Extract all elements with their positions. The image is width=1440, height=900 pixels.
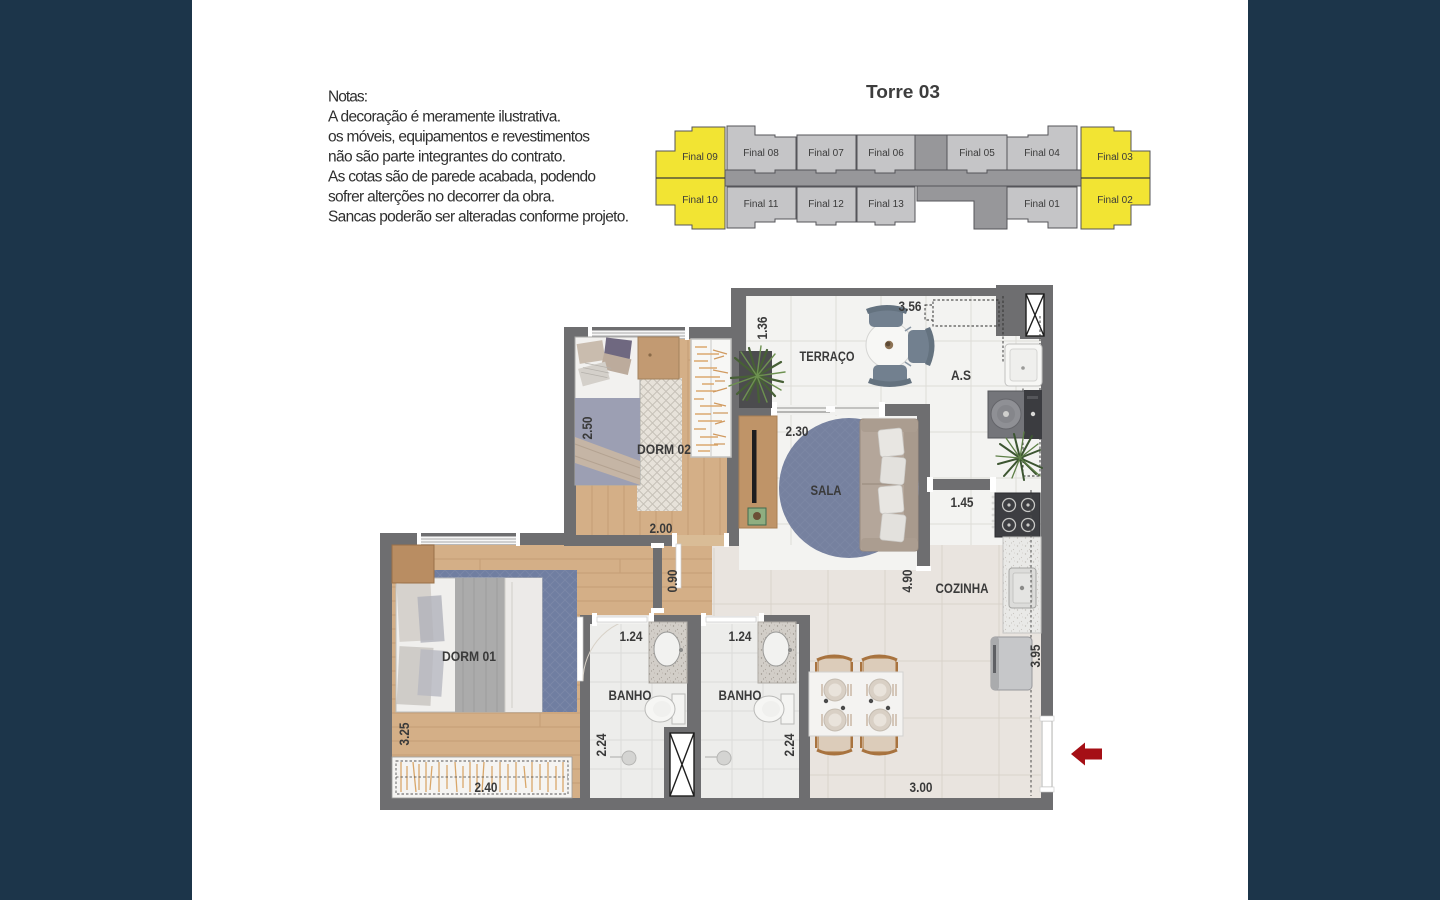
svg-text:2.24: 2.24: [782, 733, 797, 756]
svg-text:2.50: 2.50: [580, 417, 595, 440]
svg-text:Final 06: Final 06: [868, 148, 904, 159]
svg-text:BANHO: BANHO: [609, 688, 652, 703]
svg-text:Final 08: Final 08: [743, 148, 779, 159]
svg-text:2.00: 2.00: [650, 521, 673, 536]
svg-text:TERRAÇO: TERRAÇO: [800, 349, 855, 364]
svg-text:Final 01: Final 01: [1024, 199, 1060, 210]
svg-text:os móveis, equipamentos e reve: os móveis, equipamentos e revestimentos: [328, 129, 590, 146]
svg-text:A decoração é meramente ilustr: A decoração é meramente ilustrativa.: [328, 109, 561, 126]
svg-text:Final 11: Final 11: [744, 199, 779, 210]
svg-text:Final 02: Final 02: [1097, 195, 1133, 206]
svg-text:Final 09: Final 09: [682, 152, 718, 163]
svg-text:1.24: 1.24: [620, 629, 643, 644]
svg-text:Final 07: Final 07: [808, 148, 844, 159]
svg-text:Final 12: Final 12: [808, 199, 844, 210]
svg-text:A.S: A.S: [951, 368, 971, 383]
svg-text:Torre 03: Torre 03: [866, 81, 940, 102]
svg-text:Notas:: Notas:: [328, 89, 368, 106]
svg-text:Final 05: Final 05: [959, 148, 995, 159]
svg-text:1.36: 1.36: [755, 316, 770, 339]
svg-text:não são parte integrantes do c: não são parte integrantes do contrato.: [328, 149, 566, 166]
svg-text:BANHO: BANHO: [719, 688, 762, 703]
svg-text:3.25: 3.25: [397, 722, 412, 745]
svg-text:2.30: 2.30: [786, 424, 809, 439]
svg-text:SALA: SALA: [811, 483, 842, 498]
svg-text:1.24: 1.24: [729, 629, 752, 644]
svg-text:2.40: 2.40: [475, 780, 498, 795]
svg-text:4.90: 4.90: [900, 570, 915, 593]
svg-text:1.45: 1.45: [951, 495, 974, 510]
svg-text:0.90: 0.90: [665, 570, 680, 593]
svg-text:As cotas são de parede acabada: As cotas são de parede acabada, podendo: [328, 169, 596, 186]
svg-text:DORM 02: DORM 02: [637, 442, 691, 457]
svg-text:COZINHA: COZINHA: [936, 581, 989, 596]
svg-text:sofrer alterções no decorrer d: sofrer alterções no decorrer da obra.: [328, 189, 555, 206]
svg-text:3.95: 3.95: [1028, 644, 1043, 667]
svg-text:3.56: 3.56: [899, 299, 922, 314]
svg-text:Final 04: Final 04: [1024, 148, 1060, 159]
svg-text:Final 13: Final 13: [868, 199, 904, 210]
svg-text:Sancas poderão ser alteradas c: Sancas poderão ser alteradas conforme pr…: [328, 209, 629, 226]
svg-text:3.00: 3.00: [910, 780, 933, 795]
svg-text:2.24: 2.24: [594, 733, 609, 756]
svg-text:Final 03: Final 03: [1097, 152, 1133, 163]
svg-text:DORM 01: DORM 01: [442, 649, 496, 664]
svg-text:Final 10: Final 10: [682, 195, 718, 206]
